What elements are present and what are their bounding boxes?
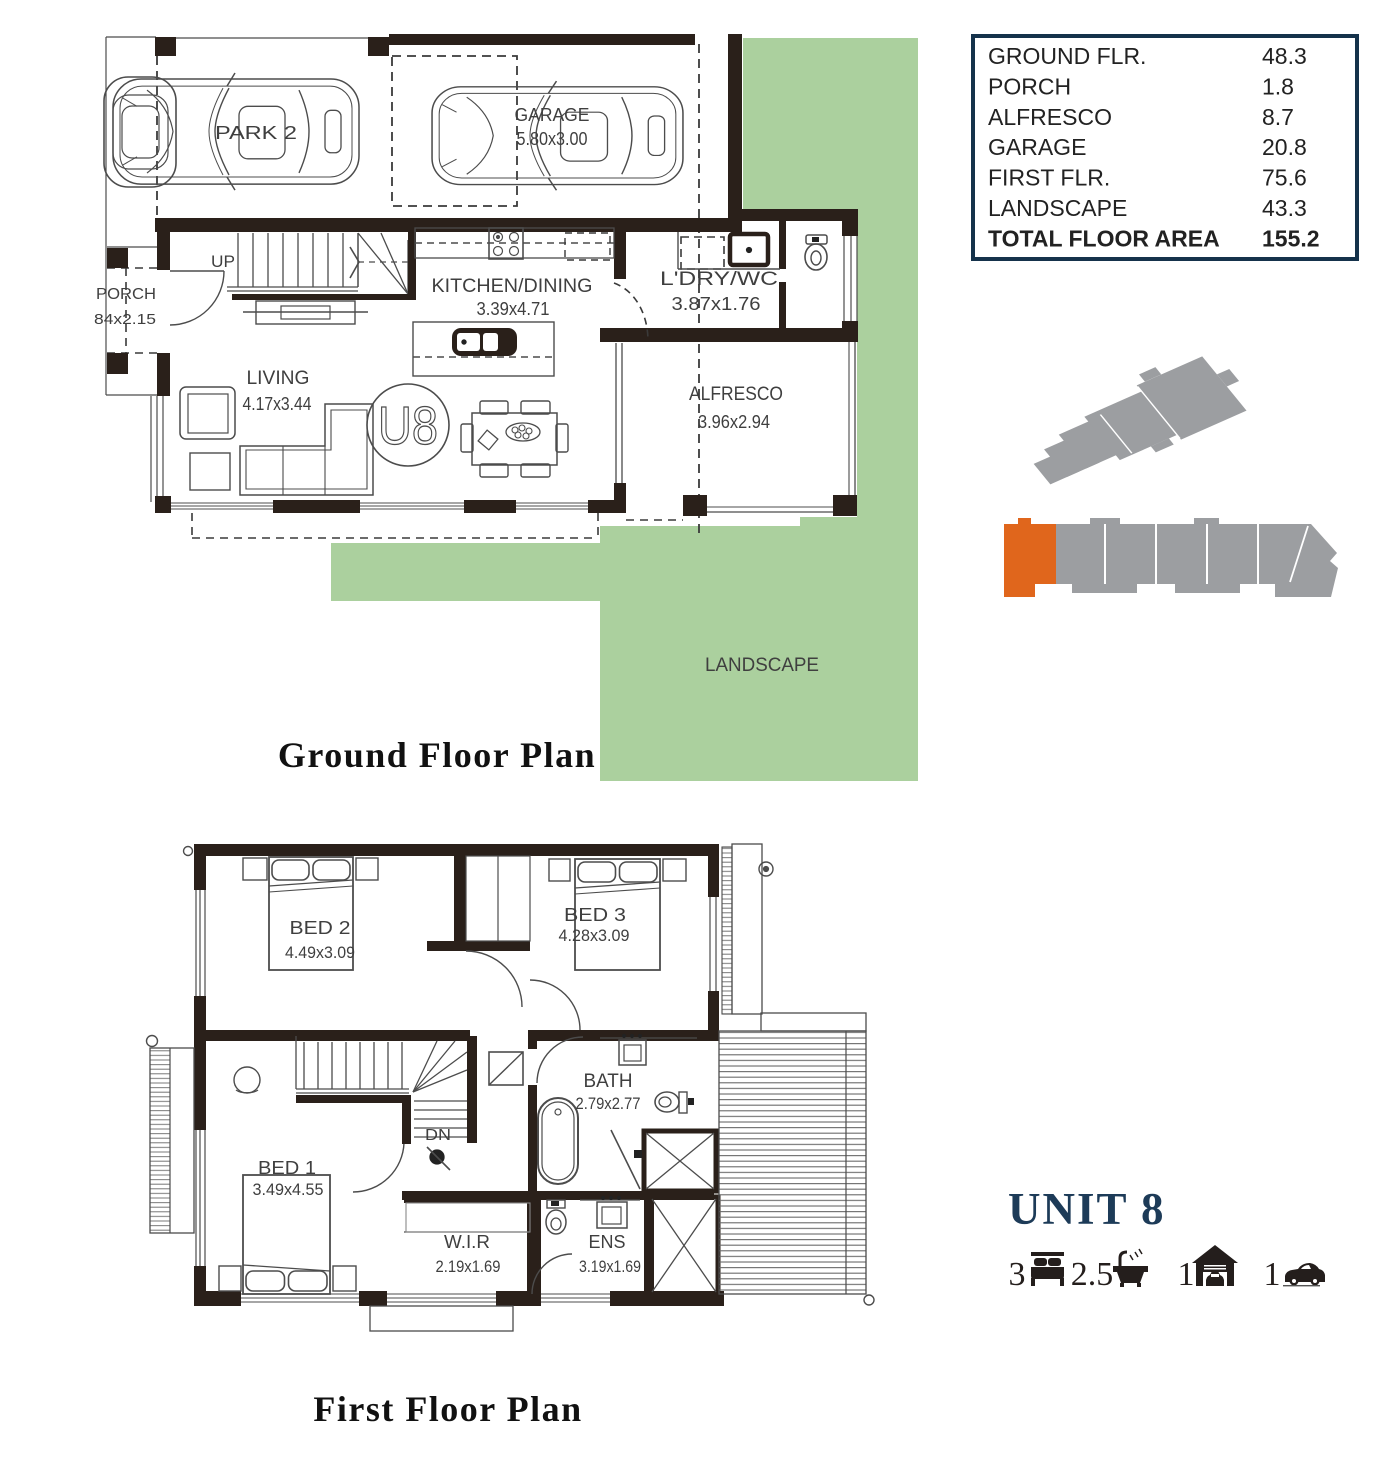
svg-text:L'DRY/WC: L'DRY/WC [660, 269, 778, 290]
svg-text:GARAGE: GARAGE [515, 105, 590, 125]
svg-text:GROUND FLR.: GROUND FLR. [988, 43, 1146, 69]
svg-text:First Floor Plan: First Floor Plan [313, 1389, 582, 1429]
svg-text:ENS: ENS [589, 1232, 626, 1252]
svg-text:84x2.15: 84x2.15 [94, 311, 156, 328]
svg-text:DN: DN [425, 1127, 451, 1144]
svg-text:UNIT 8: UNIT 8 [1008, 1184, 1165, 1234]
svg-text:155.2: 155.2 [1262, 225, 1320, 251]
svg-text:LIVING: LIVING [247, 368, 310, 389]
svg-text:PORCH: PORCH [988, 73, 1071, 99]
svg-text:TOTAL FLOOR AREA: TOTAL FLOOR AREA [988, 225, 1220, 251]
svg-text:PARK 2: PARK 2 [215, 123, 297, 143]
svg-text:BED 2: BED 2 [290, 918, 351, 938]
svg-text:4.28x3.09: 4.28x3.09 [559, 926, 630, 945]
svg-text:Ground Floor Plan: Ground Floor Plan [278, 735, 596, 775]
svg-text:3.49x4.55: 3.49x4.55 [253, 1180, 324, 1199]
svg-text:48.3: 48.3 [1262, 43, 1307, 69]
svg-text:BED 3: BED 3 [564, 905, 626, 925]
svg-text:2.19x1.69: 2.19x1.69 [436, 1257, 501, 1276]
svg-text:KITCHEN/DINING: KITCHEN/DINING [432, 276, 593, 297]
svg-text:ALFRESCO: ALFRESCO [988, 104, 1112, 130]
svg-text:UP: UP [211, 252, 235, 271]
svg-text:3.96x2.94: 3.96x2.94 [698, 412, 770, 432]
svg-text:FIRST FLR.: FIRST FLR. [988, 165, 1110, 191]
svg-text:8.7: 8.7 [1262, 104, 1294, 130]
svg-text:1.8: 1.8 [1262, 73, 1294, 99]
svg-text:3.19x1.69: 3.19x1.69 [579, 1257, 641, 1276]
svg-text:LANDSCAPE: LANDSCAPE [988, 195, 1127, 221]
svg-text:LANDSCAPE: LANDSCAPE [705, 655, 819, 676]
svg-text:2.79x2.77: 2.79x2.77 [576, 1094, 641, 1113]
svg-text:2.5: 2.5 [1071, 1256, 1114, 1293]
svg-text:1: 1 [1178, 1256, 1195, 1293]
svg-text:20.8: 20.8 [1262, 134, 1307, 160]
svg-text:43.3: 43.3 [1262, 195, 1307, 221]
svg-text:4.17x3.44: 4.17x3.44 [243, 394, 312, 414]
svg-text:4.49x3.09: 4.49x3.09 [285, 943, 355, 962]
svg-text:GARAGE: GARAGE [988, 134, 1086, 160]
svg-text:ALFRESCO: ALFRESCO [689, 384, 783, 405]
svg-text:75.6: 75.6 [1262, 165, 1307, 191]
svg-text:BATH: BATH [584, 1071, 633, 1092]
svg-text:PORCH: PORCH [96, 286, 156, 303]
svg-text:W.I.R: W.I.R [444, 1232, 490, 1252]
svg-text:3.87x1.76: 3.87x1.76 [672, 294, 761, 314]
svg-text:5.80x3.00: 5.80x3.00 [517, 129, 588, 149]
svg-text:1: 1 [1264, 1256, 1281, 1293]
svg-text:U8: U8 [378, 396, 438, 456]
svg-text:BED 1: BED 1 [258, 1158, 316, 1178]
svg-text:3.39x4.71: 3.39x4.71 [477, 299, 550, 319]
svg-text:3: 3 [1009, 1256, 1026, 1293]
